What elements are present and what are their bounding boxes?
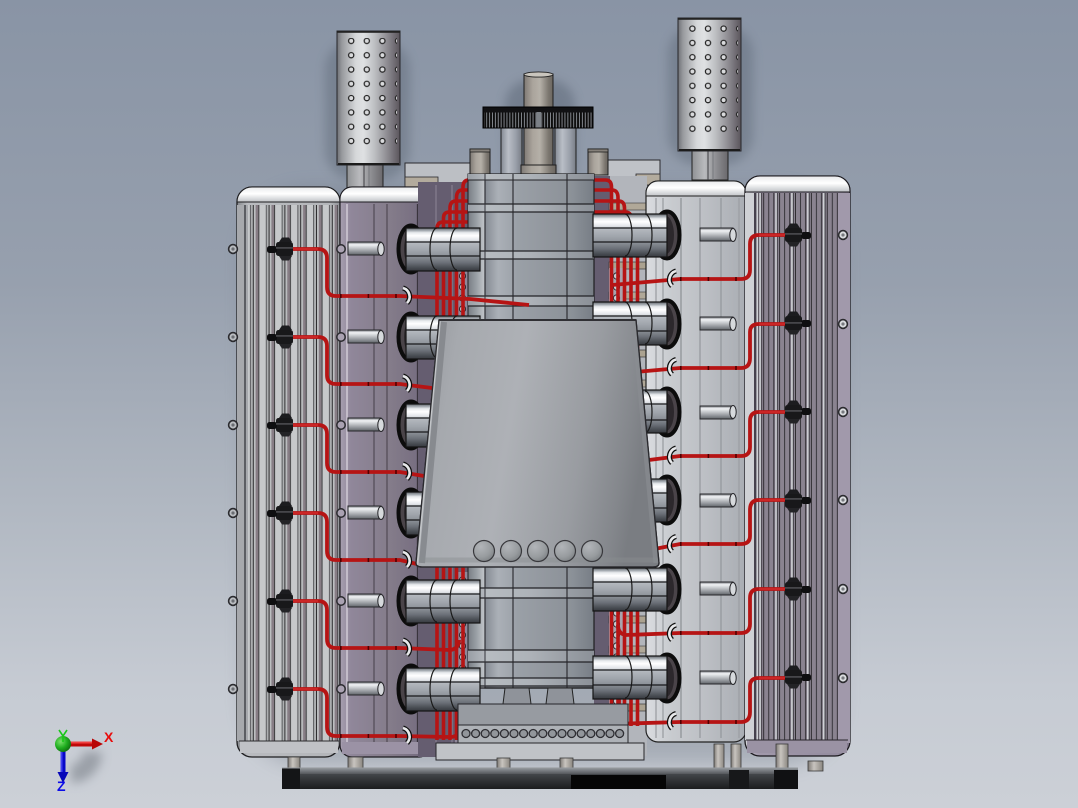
svg-text:X: X [104,729,114,745]
svg-text:Z: Z [57,778,66,794]
